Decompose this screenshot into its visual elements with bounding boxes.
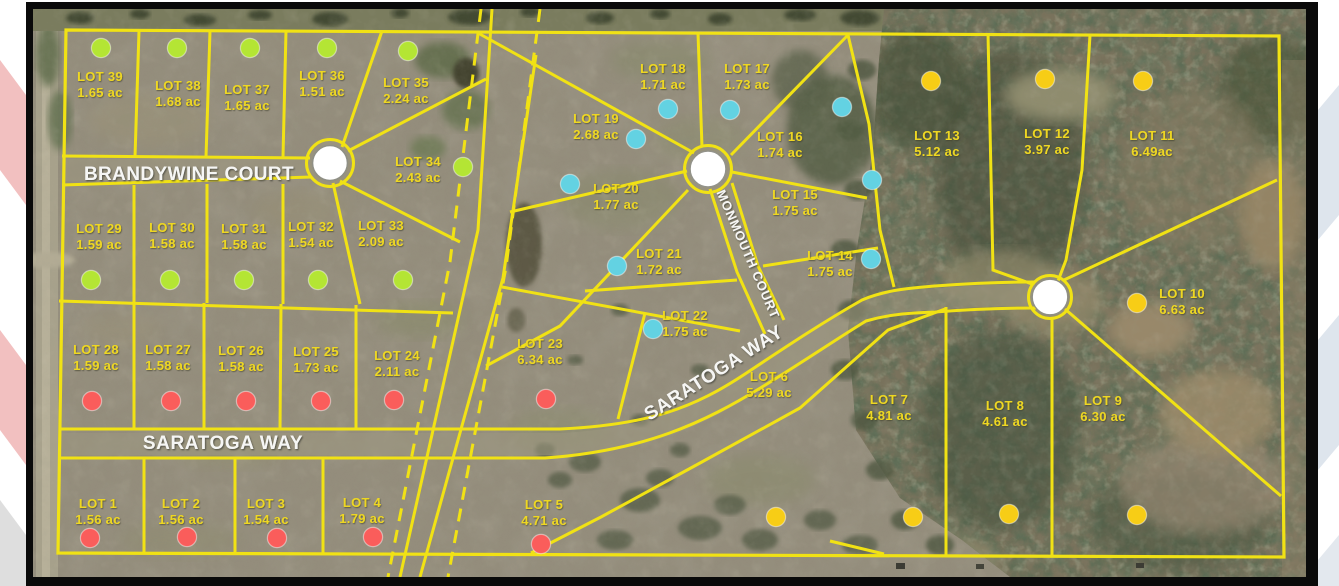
svg-text:1.54 ac: 1.54 ac <box>288 235 333 250</box>
svg-text:6.49ac: 6.49ac <box>1131 144 1173 159</box>
svg-text:LOT 20: LOT 20 <box>593 181 639 196</box>
svg-text:2.68 ac: 2.68 ac <box>573 127 618 142</box>
svg-text:1.72 ac: 1.72 ac <box>636 262 681 277</box>
svg-text:1.56 ac: 1.56 ac <box>158 512 203 527</box>
svg-text:LOT 31: LOT 31 <box>221 221 267 236</box>
svg-text:1.71 ac: 1.71 ac <box>640 77 685 92</box>
svg-text:1.75 ac: 1.75 ac <box>662 324 707 339</box>
svg-text:1.58 ac: 1.58 ac <box>149 236 194 251</box>
svg-text:1.65 ac: 1.65 ac <box>77 85 122 100</box>
svg-text:LOT 35: LOT 35 <box>383 75 429 90</box>
svg-text:6.34 ac: 6.34 ac <box>517 352 562 367</box>
svg-text:LOT 7: LOT 7 <box>870 392 908 407</box>
svg-text:LOT 23: LOT 23 <box>517 336 563 351</box>
svg-text:LOT 2: LOT 2 <box>162 496 200 511</box>
svg-text:4.81 ac: 4.81 ac <box>866 408 911 423</box>
svg-text:LOT 3: LOT 3 <box>247 496 285 511</box>
svg-text:1.75 ac: 1.75 ac <box>807 264 852 279</box>
svg-text:1.59 ac: 1.59 ac <box>76 237 121 252</box>
svg-text:1.65 ac: 1.65 ac <box>224 98 269 113</box>
svg-text:LOT 29: LOT 29 <box>76 221 122 236</box>
svg-text:1.56 ac: 1.56 ac <box>75 512 120 527</box>
svg-text:6.63 ac: 6.63 ac <box>1159 302 1204 317</box>
svg-text:LOT 19: LOT 19 <box>573 111 619 126</box>
svg-text:1.59 ac: 1.59 ac <box>73 358 118 373</box>
svg-text:6.30 ac: 6.30 ac <box>1080 409 1125 424</box>
svg-text:1.74 ac: 1.74 ac <box>757 145 802 160</box>
svg-text:LOT 26: LOT 26 <box>218 343 264 358</box>
svg-text:3.97 ac: 3.97 ac <box>1024 142 1069 157</box>
svg-text:LOT 17: LOT 17 <box>724 61 770 76</box>
svg-text:2.09 ac: 2.09 ac <box>358 234 403 249</box>
svg-text:5.12 ac: 5.12 ac <box>914 144 959 159</box>
svg-text:LOT 15: LOT 15 <box>772 187 818 202</box>
svg-text:LOT 25: LOT 25 <box>293 344 339 359</box>
svg-text:LOT 24: LOT 24 <box>374 348 420 363</box>
svg-text:5.29 ac: 5.29 ac <box>746 385 791 400</box>
svg-text:LOT 13: LOT 13 <box>914 128 960 143</box>
svg-text:LOT 4: LOT 4 <box>343 495 382 510</box>
svg-text:LOT 39: LOT 39 <box>77 69 123 84</box>
svg-text:1.58 ac: 1.58 ac <box>221 237 266 252</box>
svg-text:LOT 9: LOT 9 <box>1084 393 1122 408</box>
svg-text:1.54 ac: 1.54 ac <box>243 512 288 527</box>
svg-text:LOT 22: LOT 22 <box>662 308 708 323</box>
svg-text:4.71 ac: 4.71 ac <box>521 513 566 528</box>
svg-text:1.58 ac: 1.58 ac <box>145 358 190 373</box>
svg-text:1.73 ac: 1.73 ac <box>293 360 338 375</box>
svg-text:SARATOGA WAY: SARATOGA WAY <box>143 433 303 454</box>
svg-text:LOT 6: LOT 6 <box>750 369 788 384</box>
svg-text:2.43 ac: 2.43 ac <box>395 170 440 185</box>
svg-text:LOT 18: LOT 18 <box>640 61 686 76</box>
svg-text:LOT 16: LOT 16 <box>757 129 803 144</box>
svg-text:LOT 27: LOT 27 <box>145 342 191 357</box>
svg-text:1.75 ac: 1.75 ac <box>772 203 817 218</box>
svg-text:1.51 ac: 1.51 ac <box>299 84 344 99</box>
svg-text:2.24 ac: 2.24 ac <box>383 91 428 106</box>
svg-text:1.68 ac: 1.68 ac <box>155 94 200 109</box>
svg-text:4.61 ac: 4.61 ac <box>982 414 1027 429</box>
svg-text:LOT 14: LOT 14 <box>807 248 853 263</box>
svg-text:LOT 33: LOT 33 <box>358 218 404 233</box>
svg-text:LOT 1: LOT 1 <box>79 496 117 511</box>
svg-text:LOT 34: LOT 34 <box>395 154 441 169</box>
svg-text:LOT 8: LOT 8 <box>986 398 1024 413</box>
svg-text:1.77 ac: 1.77 ac <box>593 197 638 212</box>
svg-text:LOT 37: LOT 37 <box>224 82 270 97</box>
svg-text:LOT 32: LOT 32 <box>288 219 334 234</box>
svg-text:1.79 ac: 1.79 ac <box>339 511 384 526</box>
svg-text:LOT 38: LOT 38 <box>155 78 201 93</box>
svg-text:LOT 12: LOT 12 <box>1024 126 1070 141</box>
svg-text:LOT 21: LOT 21 <box>636 246 682 261</box>
svg-text:BRANDYWINE COURT: BRANDYWINE COURT <box>84 164 294 185</box>
svg-text:LOT 5: LOT 5 <box>525 497 563 512</box>
svg-text:2.11 ac: 2.11 ac <box>375 364 420 379</box>
svg-text:LOT 36: LOT 36 <box>299 68 345 83</box>
svg-text:LOT 30: LOT 30 <box>149 220 195 235</box>
svg-text:1.73 ac: 1.73 ac <box>724 77 769 92</box>
svg-text:1.58 ac: 1.58 ac <box>218 359 263 374</box>
svg-text:LOT 28: LOT 28 <box>73 342 119 357</box>
svg-text:LOT 10: LOT 10 <box>1159 286 1205 301</box>
svg-text:LOT 11: LOT 11 <box>1129 128 1174 143</box>
